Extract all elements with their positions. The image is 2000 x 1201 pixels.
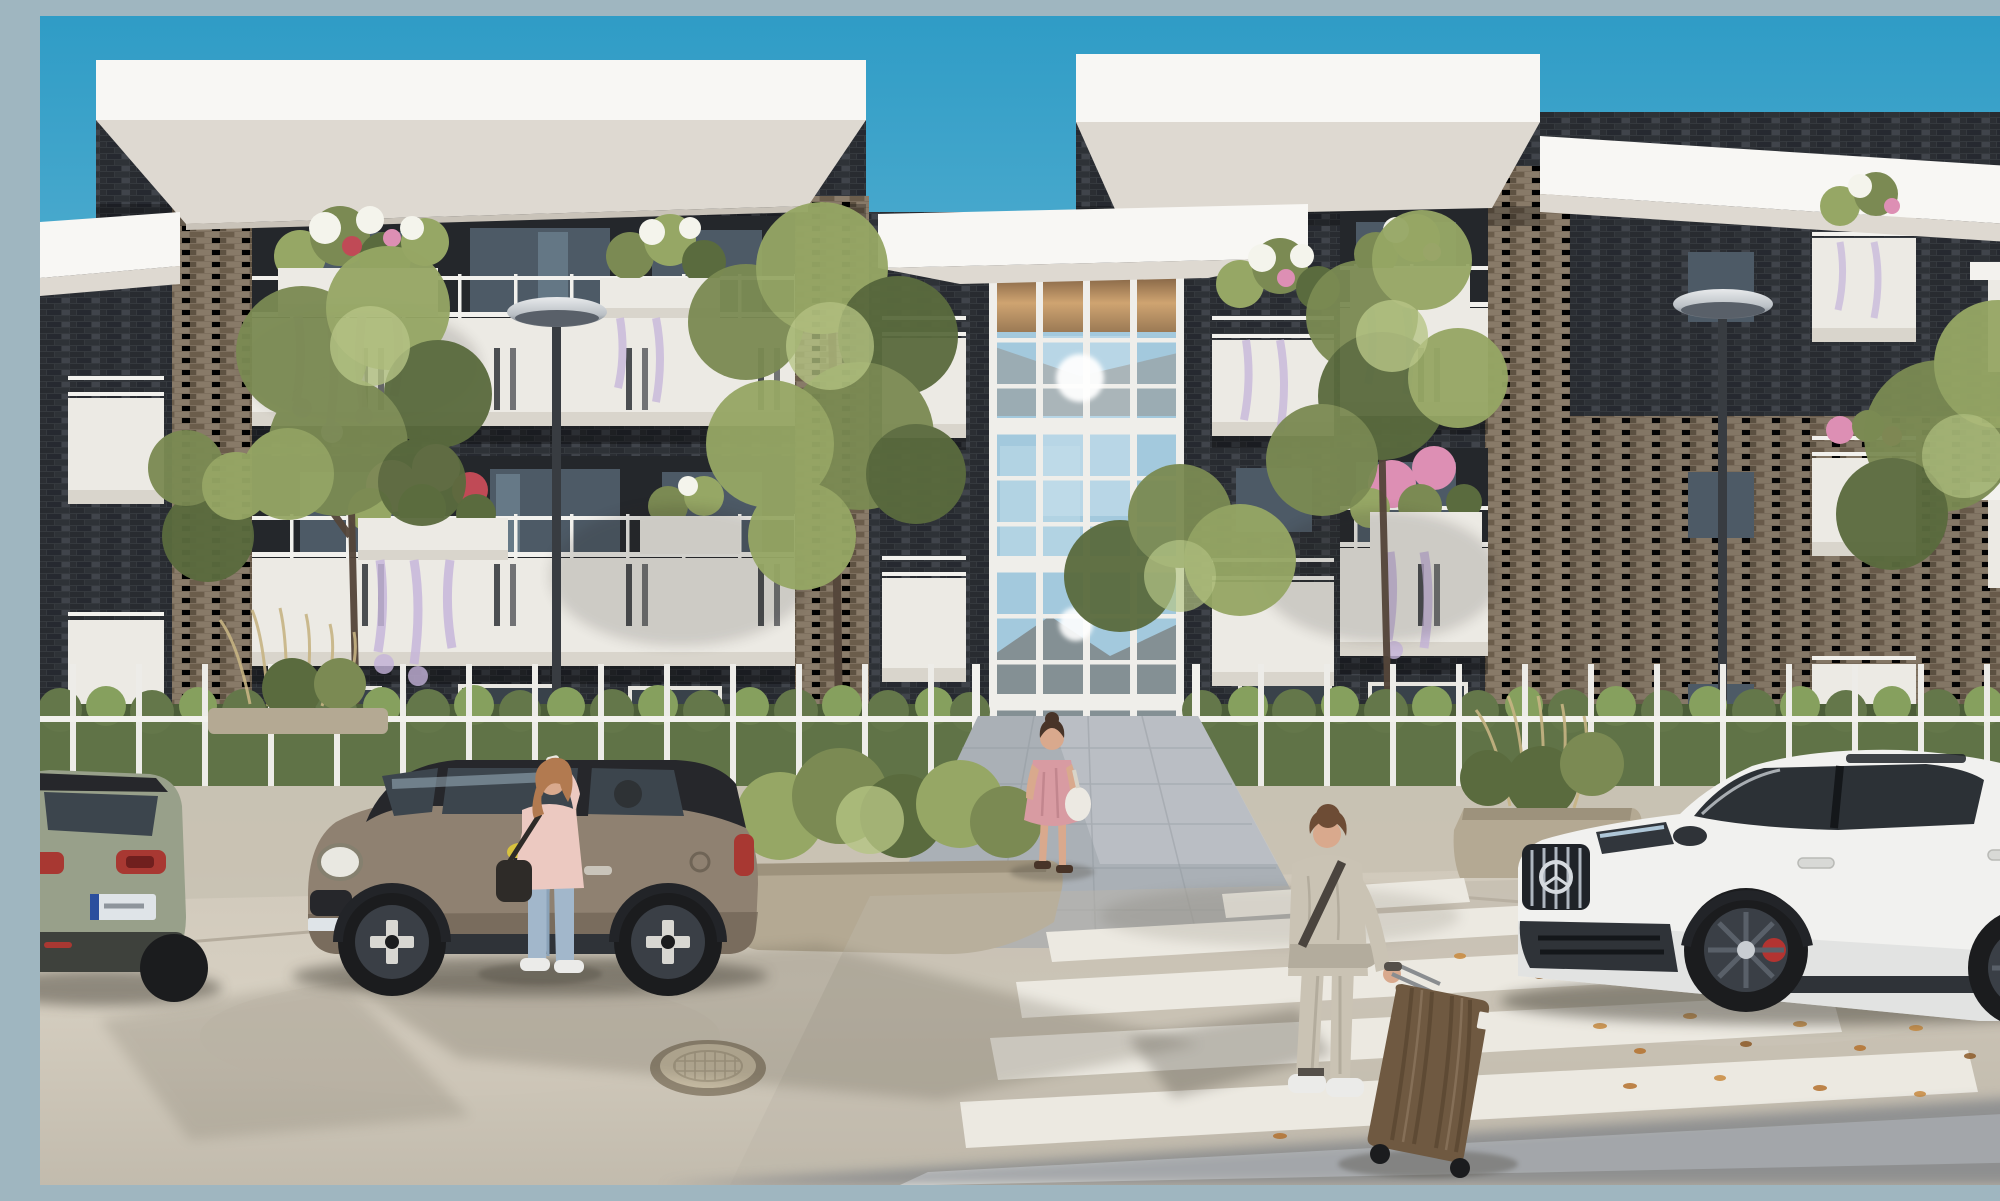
- scene: [40, 16, 2000, 1185]
- box-balcony: [882, 556, 966, 682]
- balcony-slab-edge: [1970, 262, 2000, 280]
- sun-glint: [1056, 354, 1104, 402]
- box-balcony: [68, 376, 164, 504]
- fence-rail: [1192, 716, 2000, 722]
- fence-rail: [40, 716, 978, 722]
